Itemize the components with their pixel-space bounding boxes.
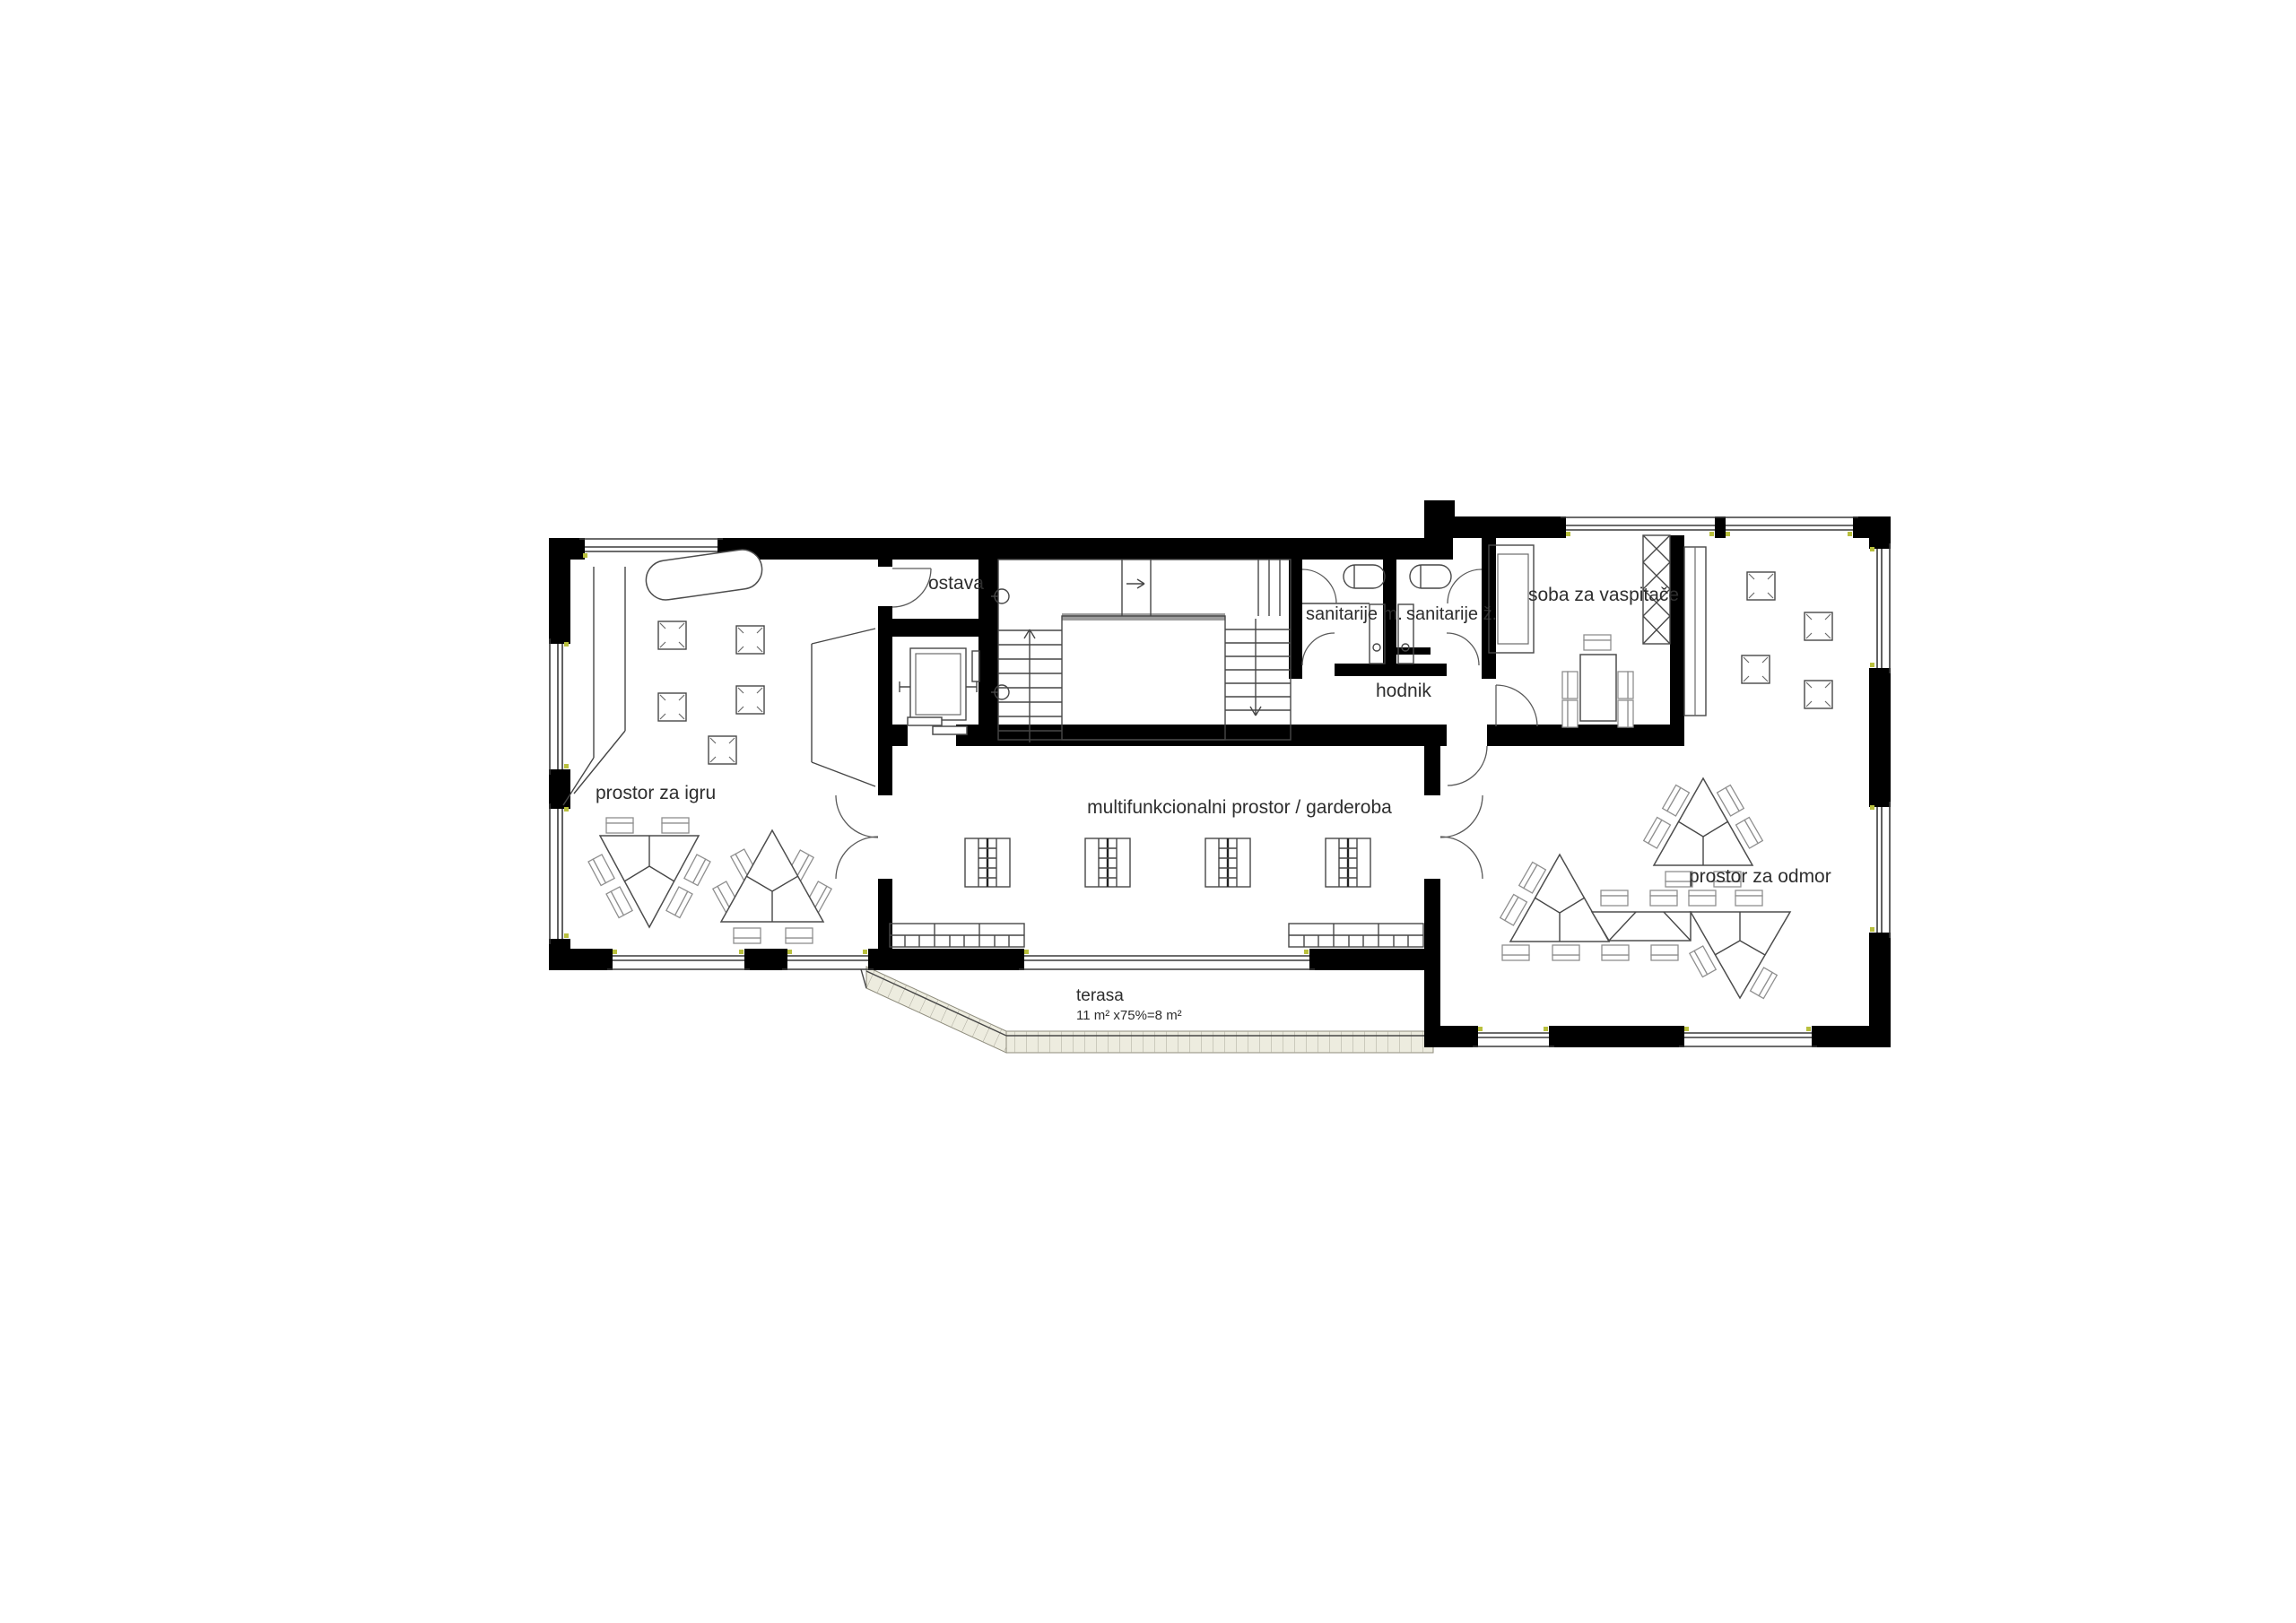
elevator xyxy=(900,648,979,734)
chair-icon xyxy=(684,855,710,885)
double-door-arc xyxy=(1440,795,1483,838)
page: terasa 11 m² x75%=8 m² xyxy=(0,0,2296,1623)
window xyxy=(1870,802,1890,938)
play-mat xyxy=(1805,681,1832,708)
chair-icon xyxy=(1562,672,1578,699)
locker-cabinet xyxy=(965,838,1010,887)
stair-treads-right xyxy=(1225,629,1291,710)
chair-icon xyxy=(666,887,692,917)
wall xyxy=(1715,516,1726,538)
door-arc xyxy=(1496,685,1537,726)
chair-icon xyxy=(588,855,614,885)
locker-cabinet xyxy=(1326,838,1370,887)
elevator-car-inner xyxy=(916,654,961,715)
locker-cabinet xyxy=(1205,838,1250,887)
play-mat xyxy=(709,736,736,764)
wall xyxy=(549,538,570,644)
terrace: terasa 11 m² x75%=8 m² xyxy=(861,967,1433,1053)
wall xyxy=(549,769,570,809)
chair-icon xyxy=(606,818,633,833)
label-hallway: hodnik xyxy=(1376,681,1431,701)
chair-icon xyxy=(1690,946,1716,976)
floor-plan-drawing: terasa 11 m² x75%=8 m² xyxy=(0,0,2296,1623)
label-play-room: prostor za igru xyxy=(596,783,716,803)
chair-icon xyxy=(1601,890,1628,906)
label-storage: ostava xyxy=(928,573,984,594)
partition-lines xyxy=(563,567,625,805)
play-mat xyxy=(1805,612,1832,640)
chair-icon xyxy=(1562,700,1578,727)
door-arc xyxy=(1447,633,1479,665)
elevator-sliding-door xyxy=(908,717,942,725)
terrace-railing-diagonal-hatch xyxy=(866,967,1006,1053)
wall xyxy=(1424,879,1440,1026)
chair-icon xyxy=(1735,890,1762,906)
chair-icon xyxy=(1689,890,1716,906)
wall-lift-east xyxy=(978,538,998,744)
wall xyxy=(878,725,908,746)
door-arc xyxy=(1448,569,1482,603)
storage-room: ostava xyxy=(892,568,984,607)
chair-icon xyxy=(1602,945,1629,960)
wall xyxy=(549,949,613,970)
sofa-inner xyxy=(1498,554,1528,644)
elevator-car xyxy=(910,648,966,720)
wall xyxy=(878,538,892,567)
play-room: prostor za igru xyxy=(563,547,875,943)
bench xyxy=(1289,924,1423,947)
wall-hallway-north xyxy=(1335,664,1447,676)
chair-icon xyxy=(606,887,632,917)
staircase xyxy=(991,560,1291,742)
door-arc xyxy=(1448,746,1487,785)
chair-icon xyxy=(1502,945,1529,960)
stair-arrow-right-icon xyxy=(1126,579,1144,588)
chair-icon xyxy=(662,818,689,833)
wall xyxy=(744,949,787,970)
play-mat xyxy=(1747,572,1775,600)
chair-icon xyxy=(1651,945,1678,960)
elevator-sliding-door xyxy=(933,726,967,734)
chair-icon xyxy=(734,928,761,943)
bench xyxy=(890,924,1024,947)
window xyxy=(1679,1027,1817,1046)
toilet-icon xyxy=(1410,565,1451,588)
window xyxy=(782,950,874,969)
table xyxy=(1580,655,1616,721)
stair-enclosure xyxy=(998,560,1291,740)
label-terrace-area: 11 m² x75%=8 m² xyxy=(1076,1008,1182,1023)
chair-icon xyxy=(1584,635,1611,650)
chair-icon xyxy=(1618,700,1633,727)
label-sanitary-m: sanitarije m. xyxy=(1306,604,1403,624)
wall xyxy=(1549,1026,1684,1047)
stair-treads-top xyxy=(1122,560,1280,616)
play-mat xyxy=(736,626,764,654)
play-bench xyxy=(644,547,765,603)
sanitary-rooms: sanitarije m. sanitarije ž. hodnik xyxy=(1302,565,1497,701)
chair-icon xyxy=(1552,945,1579,960)
wall xyxy=(1424,1026,1478,1047)
terrace-railing-horizontal-hatch xyxy=(1006,1031,1433,1053)
wall xyxy=(1812,1026,1891,1047)
label-terrace: terasa xyxy=(1076,986,1124,1005)
door-arc xyxy=(1302,633,1335,665)
chair-icon xyxy=(1618,672,1633,699)
table-band xyxy=(1592,912,1691,941)
chair-icon xyxy=(1650,890,1677,906)
label-multifunctional: multifunkcionalni prostor / garderoba xyxy=(1087,797,1392,818)
stair-arrow-down-icon xyxy=(1250,619,1261,716)
stair-void xyxy=(1062,616,1225,740)
wall-teachers-south xyxy=(1487,725,1684,746)
locker-cabinet xyxy=(1085,838,1130,887)
play-mat xyxy=(1742,655,1770,683)
window xyxy=(1473,1027,1554,1046)
wall xyxy=(1309,949,1440,970)
wall xyxy=(1869,668,1891,807)
railing-inner-line xyxy=(866,971,1006,1036)
window xyxy=(1720,517,1858,536)
elevator-counterweight xyxy=(972,651,979,681)
play-mat xyxy=(736,686,764,714)
wall-step xyxy=(1424,500,1455,518)
label-teachers-room: soba za vaspitače xyxy=(1528,585,1679,605)
play-mat xyxy=(658,621,686,649)
wall xyxy=(1869,516,1891,549)
label-rest-room: prostor za odmor xyxy=(1689,866,1831,887)
chair-icon xyxy=(786,928,813,943)
label-sanitary-f: sanitarije ž. xyxy=(1406,604,1497,624)
wall xyxy=(868,949,1024,970)
wall xyxy=(1424,516,1566,538)
double-door-arc xyxy=(836,837,878,879)
double-door-arc xyxy=(836,795,878,838)
elevator-guides xyxy=(900,681,977,692)
washbasin-drain-icon xyxy=(1373,644,1380,651)
stair-cut-line xyxy=(1062,613,1225,621)
window xyxy=(550,638,569,775)
window xyxy=(1019,950,1315,969)
wall xyxy=(717,538,1453,560)
window xyxy=(1561,517,1720,536)
teachers-room: soba za vaspitače xyxy=(1489,535,1679,727)
play-mat xyxy=(658,693,686,721)
railing-end-cap xyxy=(861,969,866,988)
rest-room: prostor za odmor xyxy=(1500,547,1832,998)
window xyxy=(607,950,750,969)
window xyxy=(1870,543,1890,673)
toilet-icon xyxy=(1344,565,1385,588)
window xyxy=(550,803,569,944)
wall-teachers-east xyxy=(1670,535,1684,746)
door-arc xyxy=(1302,569,1336,603)
splayed-opening xyxy=(812,629,875,786)
double-door-arc xyxy=(1440,837,1483,879)
multifunctional-room: multifunkcionalni prostor / garderoba xyxy=(836,746,1487,947)
door-arc xyxy=(892,568,931,607)
